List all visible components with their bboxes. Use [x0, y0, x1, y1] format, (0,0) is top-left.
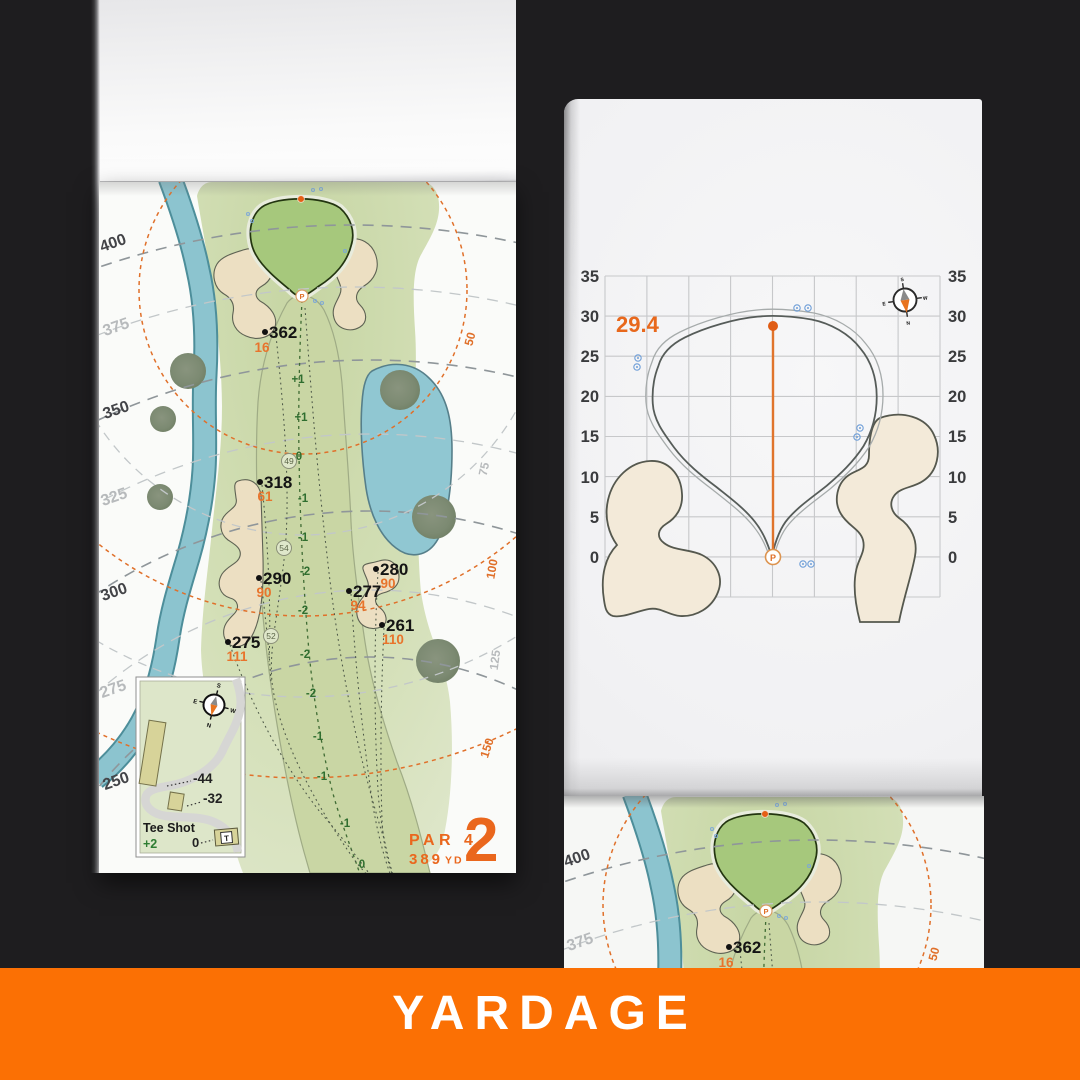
svg-text:+1: +1 — [291, 374, 305, 386]
svg-text:10: 10 — [948, 469, 966, 487]
svg-text:-44: -44 — [193, 771, 213, 786]
svg-text:375: 375 — [101, 315, 132, 340]
svg-text:S: S — [900, 277, 905, 283]
svg-text:75: 75 — [476, 461, 493, 477]
svg-text:110: 110 — [382, 632, 404, 647]
svg-text:15: 15 — [948, 428, 966, 446]
svg-text:389YD: 389YD — [409, 851, 464, 868]
svg-text:16: 16 — [254, 340, 270, 355]
svg-text:-1: -1 — [298, 532, 309, 544]
svg-text:30: 30 — [581, 308, 599, 326]
svg-text:0: 0 — [359, 859, 365, 871]
svg-text:30: 30 — [948, 308, 966, 326]
svg-text:2: 2 — [464, 806, 498, 873]
svg-text:350: 350 — [101, 398, 132, 423]
svg-text:P: P — [299, 292, 304, 301]
svg-text:275: 275 — [99, 677, 129, 702]
svg-text:5: 5 — [948, 509, 957, 527]
svg-text:61: 61 — [257, 489, 273, 504]
svg-text:400: 400 — [99, 231, 129, 256]
svg-text:362: 362 — [269, 323, 297, 342]
svg-text:W: W — [923, 295, 929, 302]
svg-text:50: 50 — [462, 330, 479, 347]
svg-text:N: N — [906, 320, 911, 326]
svg-text:52: 52 — [266, 631, 276, 641]
svg-text:20: 20 — [948, 388, 966, 406]
svg-text:94: 94 — [350, 598, 366, 613]
svg-text:-1: -1 — [317, 771, 328, 783]
svg-text:49: 49 — [284, 456, 294, 466]
svg-text:Tee Shot: Tee Shot — [143, 821, 196, 835]
svg-text:90: 90 — [380, 576, 395, 591]
svg-text:90: 90 — [256, 585, 271, 600]
svg-text:-1: -1 — [298, 493, 309, 505]
svg-text:29.4: 29.4 — [616, 312, 660, 337]
svg-text:20: 20 — [581, 388, 599, 406]
svg-text:325: 325 — [99, 485, 130, 510]
svg-text:+1: +1 — [294, 412, 308, 424]
svg-text:111: 111 — [226, 649, 248, 664]
svg-text:E: E — [882, 301, 887, 307]
svg-text:10: 10 — [581, 469, 599, 487]
svg-text:15: 15 — [581, 428, 599, 446]
svg-text:25: 25 — [581, 348, 599, 366]
svg-text:35: 35 — [581, 268, 599, 286]
svg-text:P: P — [770, 553, 776, 563]
svg-text:T: T — [224, 834, 230, 843]
svg-text:0: 0 — [590, 549, 599, 567]
svg-text:0: 0 — [948, 549, 957, 567]
svg-text:54: 54 — [279, 543, 289, 553]
svg-text:-2: -2 — [306, 688, 316, 700]
svg-text:25: 25 — [948, 348, 966, 366]
svg-text:-32: -32 — [203, 791, 223, 806]
svg-text:-1: -1 — [313, 731, 324, 743]
svg-text:-2: -2 — [300, 649, 310, 661]
svg-text:5: 5 — [590, 509, 599, 527]
svg-text:125: 125 — [487, 649, 504, 671]
svg-text:-1: -1 — [340, 818, 351, 830]
svg-text:-2: -2 — [298, 605, 308, 617]
svg-text:300: 300 — [99, 580, 130, 605]
svg-text:+2: +2 — [143, 837, 157, 851]
svg-text:100: 100 — [483, 558, 500, 580]
svg-text:35: 35 — [948, 268, 966, 286]
svg-text:0: 0 — [192, 835, 199, 850]
svg-text:-2: -2 — [300, 566, 310, 578]
